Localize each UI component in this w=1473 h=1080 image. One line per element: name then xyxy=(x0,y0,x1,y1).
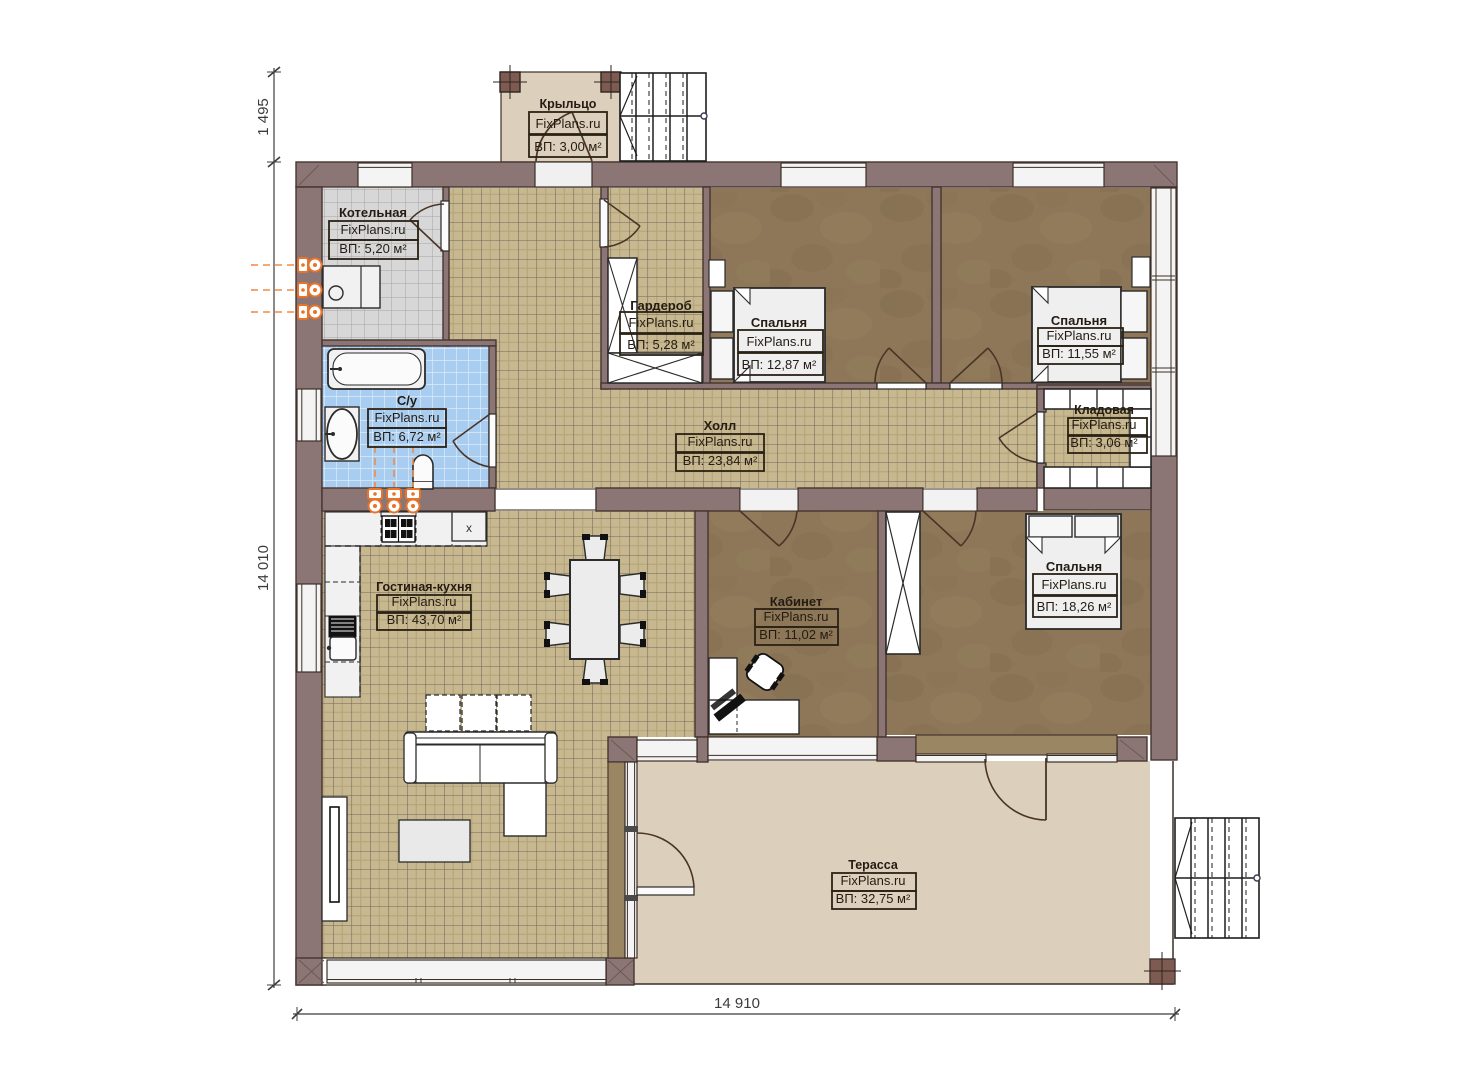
svg-text:FixPlans.ru: FixPlans.ru xyxy=(628,315,693,330)
svg-text:ВП: 11,02 м²: ВП: 11,02 м² xyxy=(759,627,833,642)
svg-text:ВП: 43,70 м²: ВП: 43,70 м² xyxy=(387,612,462,627)
svg-text:FixPlans.ru: FixPlans.ru xyxy=(1071,417,1136,432)
svg-text:Спальня: Спальня xyxy=(751,315,807,330)
svg-text:Холл: Холл xyxy=(704,418,737,433)
svg-text:Гардероб: Гардероб xyxy=(630,298,691,313)
svg-text:14 910: 14 910 xyxy=(714,995,760,1012)
svg-text:С/у: С/у xyxy=(397,393,418,408)
svg-text:Спальня: Спальня xyxy=(1051,313,1107,328)
svg-text:Спальня: Спальня xyxy=(1046,559,1102,574)
svg-text:Терасса: Терасса xyxy=(848,858,899,872)
svg-text:Котельная: Котельная xyxy=(339,205,407,220)
svg-text:1 495: 1 495 xyxy=(255,98,272,136)
svg-text:FixPlans.ru: FixPlans.ru xyxy=(1041,577,1106,592)
svg-text:Кладовая: Кладовая xyxy=(1074,403,1134,417)
svg-text:Гостиная-кухня: Гостиная-кухня xyxy=(376,580,472,594)
svg-text:FixPlans.ru: FixPlans.ru xyxy=(687,434,752,449)
svg-text:ВП: 3,00 м²: ВП: 3,00 м² xyxy=(534,139,602,154)
svg-text:ВП: 12,87 м²: ВП: 12,87 м² xyxy=(742,357,817,372)
svg-text:ВП: 3,06 м²: ВП: 3,06 м² xyxy=(1070,435,1138,450)
svg-text:Кабинет: Кабинет xyxy=(770,594,823,609)
svg-text:14 010: 14 010 xyxy=(255,545,272,591)
svg-text:FixPlans.ru: FixPlans.ru xyxy=(374,410,439,425)
svg-text:ВП: 32,75 м²: ВП: 32,75 м² xyxy=(836,891,911,906)
svg-text:ВП: 18,26 м²: ВП: 18,26 м² xyxy=(1037,599,1112,614)
svg-text:FixPlans.ru: FixPlans.ru xyxy=(840,873,905,888)
svg-text:ВП: 6,72 м²: ВП: 6,72 м² xyxy=(373,429,441,444)
svg-text:FixPlans.ru: FixPlans.ru xyxy=(535,116,600,131)
svg-text:FixPlans.ru: FixPlans.ru xyxy=(746,334,811,349)
svg-text:FixPlans.ru: FixPlans.ru xyxy=(1046,328,1111,343)
svg-text:Крыльцо: Крыльцо xyxy=(540,97,597,111)
svg-text:FixPlans.ru: FixPlans.ru xyxy=(391,594,456,609)
svg-text:ВП: 5,28 м²: ВП: 5,28 м² xyxy=(627,337,695,352)
svg-text:FixPlans.ru: FixPlans.ru xyxy=(763,609,828,624)
svg-text:ВП: 23,84 м²: ВП: 23,84 м² xyxy=(683,453,758,468)
svg-text:FixPlans.ru: FixPlans.ru xyxy=(340,222,405,237)
svg-text:ВП: 11,55 м²: ВП: 11,55 м² xyxy=(1042,346,1116,361)
svg-text:ВП: 5,20 м²: ВП: 5,20 м² xyxy=(339,241,407,256)
svg-text:x: x xyxy=(466,521,472,535)
